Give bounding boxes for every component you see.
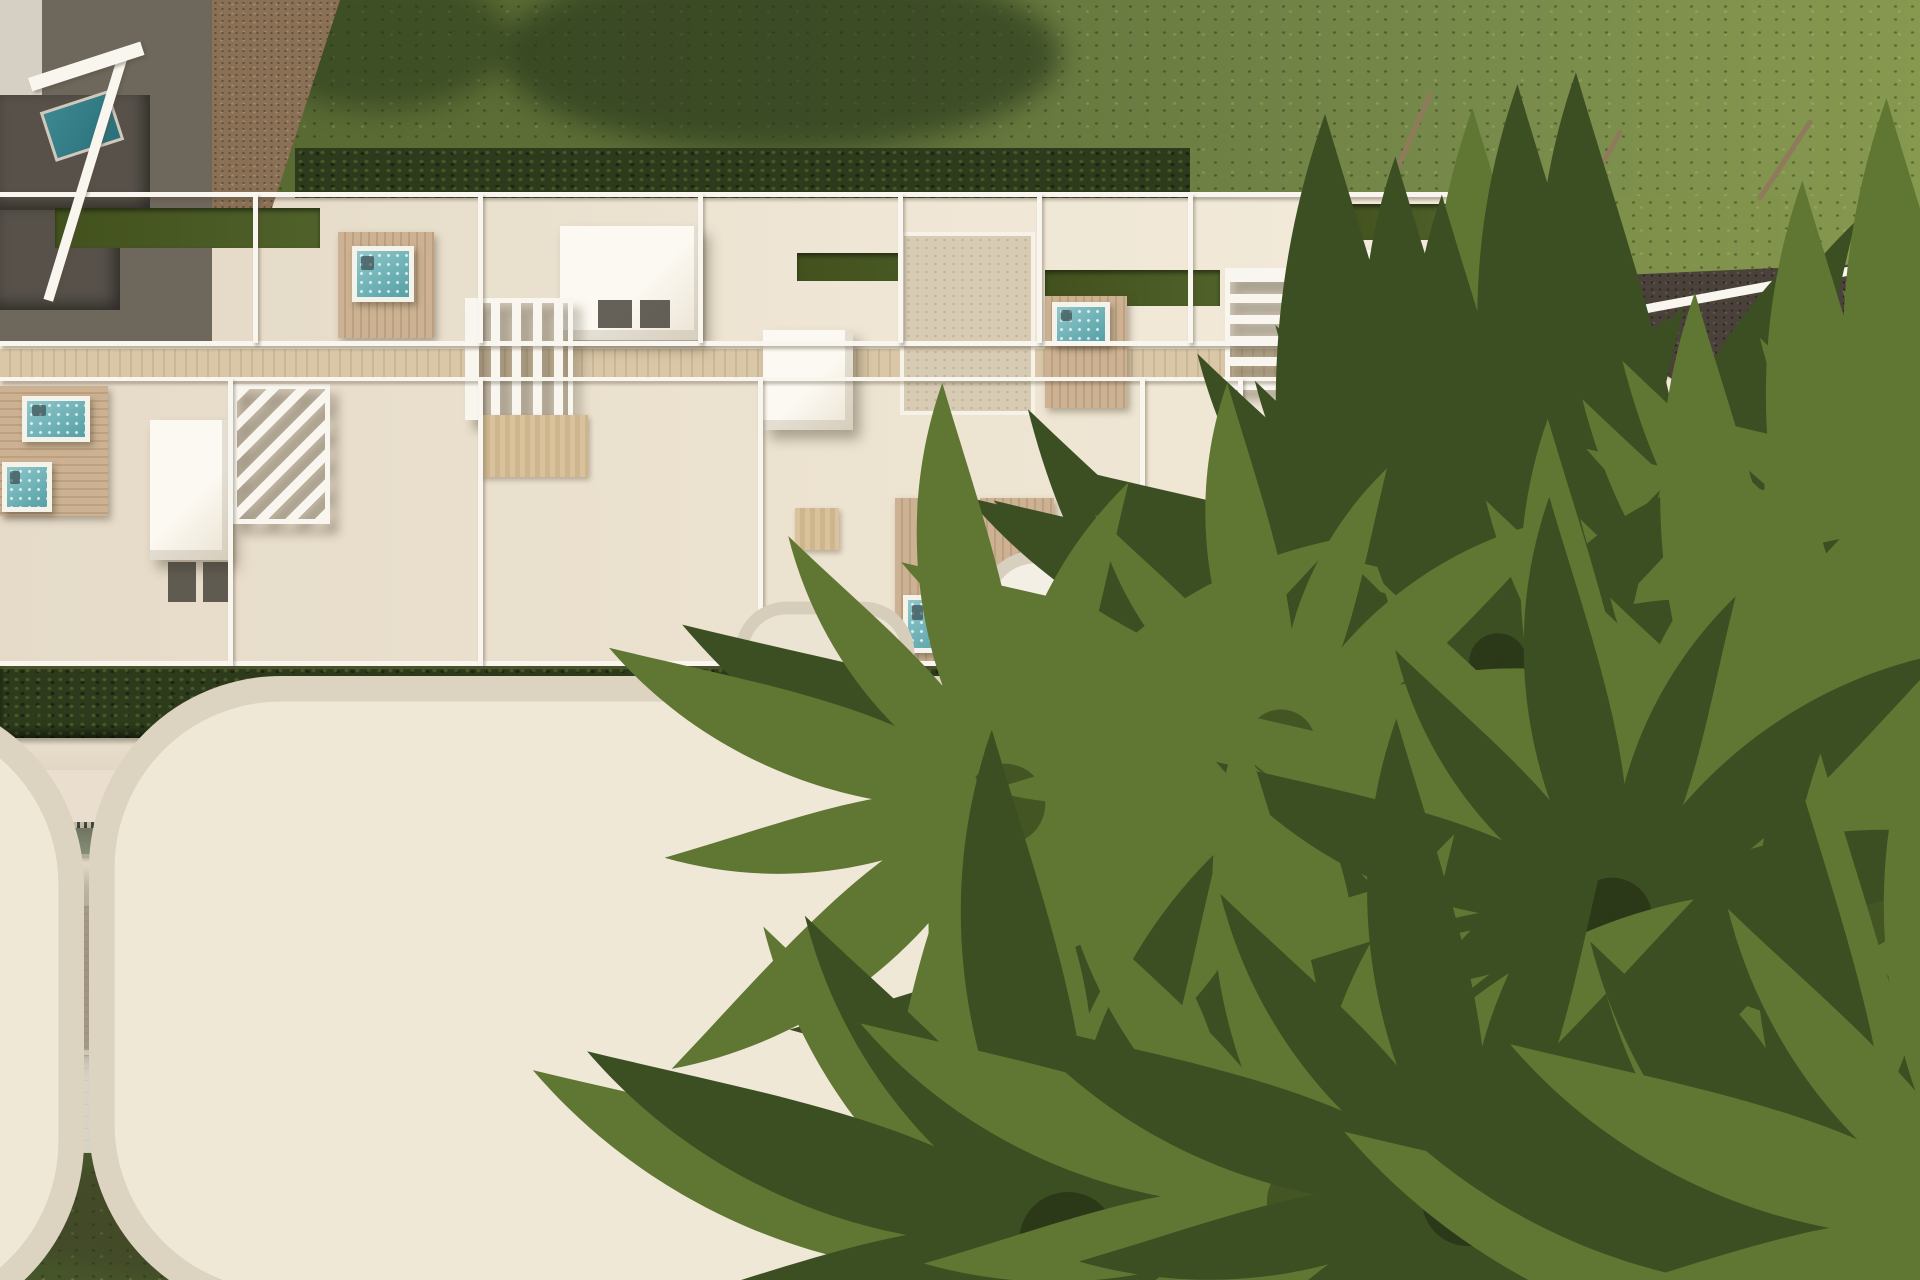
- shade-mat: [795, 508, 839, 550]
- parapet-wall: [1768, 378, 1773, 666]
- parapet-wall: [0, 661, 1920, 666]
- balcony-shutter-slats: [430, 826, 550, 852]
- slatted-pergola: [1225, 268, 1310, 390]
- facade-pier: [0, 770, 14, 858]
- balcony-recess: [300, 782, 430, 838]
- parapet-wall: [1326, 378, 1331, 666]
- palm-courtyard: [900, 232, 1035, 415]
- facade-pier: [286, 770, 296, 858]
- facade-pier: [1906, 770, 1920, 858]
- street-hedge: [0, 666, 1920, 738]
- jacuzzi: [352, 246, 414, 302]
- parapet-wall: [1037, 193, 1042, 343]
- parapet-wall: [1332, 193, 1337, 343]
- parapet-wall: [0, 341, 1560, 346]
- parapet-wall: [898, 193, 903, 343]
- roof-tower: [150, 420, 230, 560]
- facade-pier: [598, 770, 610, 858]
- facade-pier: [424, 770, 434, 858]
- top-hedge: [295, 148, 1190, 198]
- slatted-pergola: [1395, 270, 1483, 388]
- parapet-wall: [0, 192, 1560, 197]
- artificial-turf-strip: [55, 208, 320, 248]
- parapet-wall: [1540, 196, 1545, 274]
- parapet-wall: [1188, 193, 1193, 343]
- cast-shadow: [0, 1148, 760, 1280]
- jacuzzi: [22, 396, 90, 442]
- parapet-wall: [478, 378, 483, 666]
- parapet-wall: [758, 378, 763, 666]
- parapet-wall: [478, 193, 483, 343]
- stair-slot: [598, 300, 632, 328]
- sidewalk: [0, 1056, 1920, 1153]
- parapet-wall: [253, 193, 258, 343]
- slatted-pergola: [1330, 473, 1467, 659]
- balcony-recess: [60, 828, 230, 854]
- cast-shadow: [840, 1190, 1260, 1280]
- parapet-wall: [1140, 378, 1145, 666]
- shade-mat: [480, 415, 588, 477]
- parapet-wall: [1238, 378, 1243, 666]
- jacuzzi: [1877, 488, 1920, 554]
- stair-slot: [640, 300, 670, 328]
- building-facade: [0, 770, 1920, 858]
- jacuzzi: [1600, 598, 1672, 656]
- aerial-render: [0, 0, 1920, 1280]
- parapet-wall: [228, 378, 233, 666]
- artificial-turf-strip: [1340, 204, 1460, 240]
- slatted-pergola: [232, 384, 330, 524]
- stair-slot: [203, 562, 228, 602]
- outdoor-counter: [1510, 580, 1582, 662]
- parapet-wall: [698, 193, 703, 343]
- jacuzzi: [988, 597, 1040, 652]
- outdoor-counter: [1475, 322, 1524, 384]
- jacuzzi: [1052, 302, 1110, 346]
- stair-slot: [168, 562, 196, 602]
- parapet-wall: [1620, 378, 1625, 666]
- jacuzzi: [903, 595, 959, 653]
- jacuzzi: [2, 462, 52, 512]
